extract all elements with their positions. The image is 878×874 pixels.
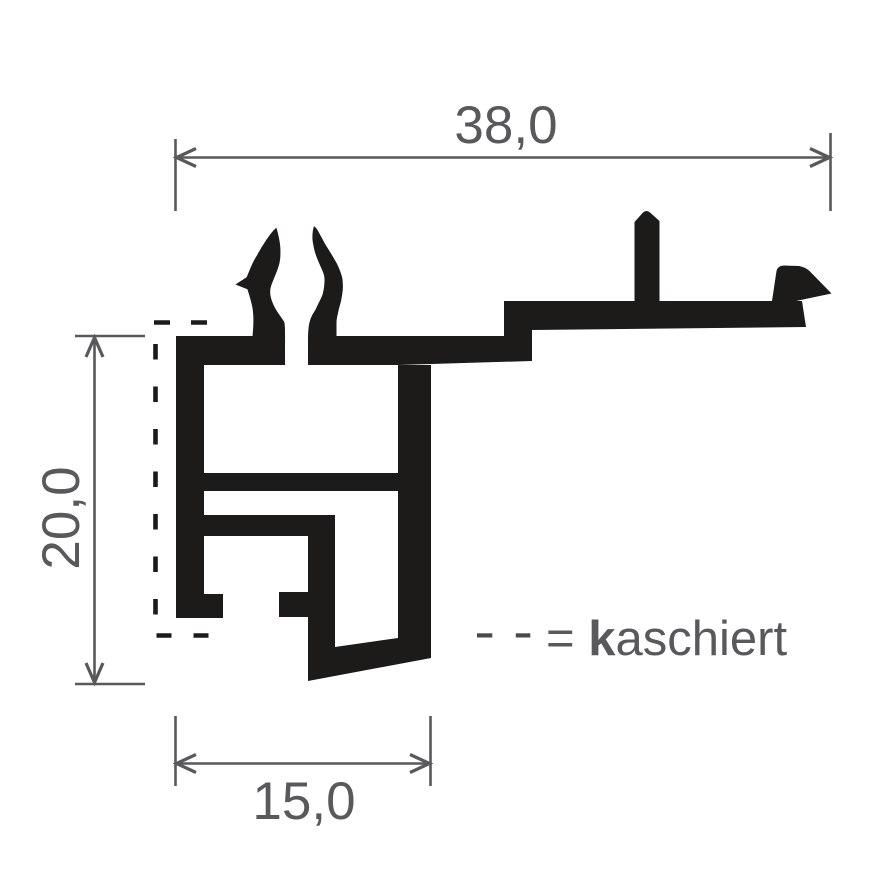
svg-text:15,0: 15,0 [252,772,355,831]
svg-text:38,0: 38,0 [454,96,557,155]
svg-text:20,0: 20,0 [32,466,91,569]
svg-text:= kaschiert: = kaschiert [546,612,787,666]
